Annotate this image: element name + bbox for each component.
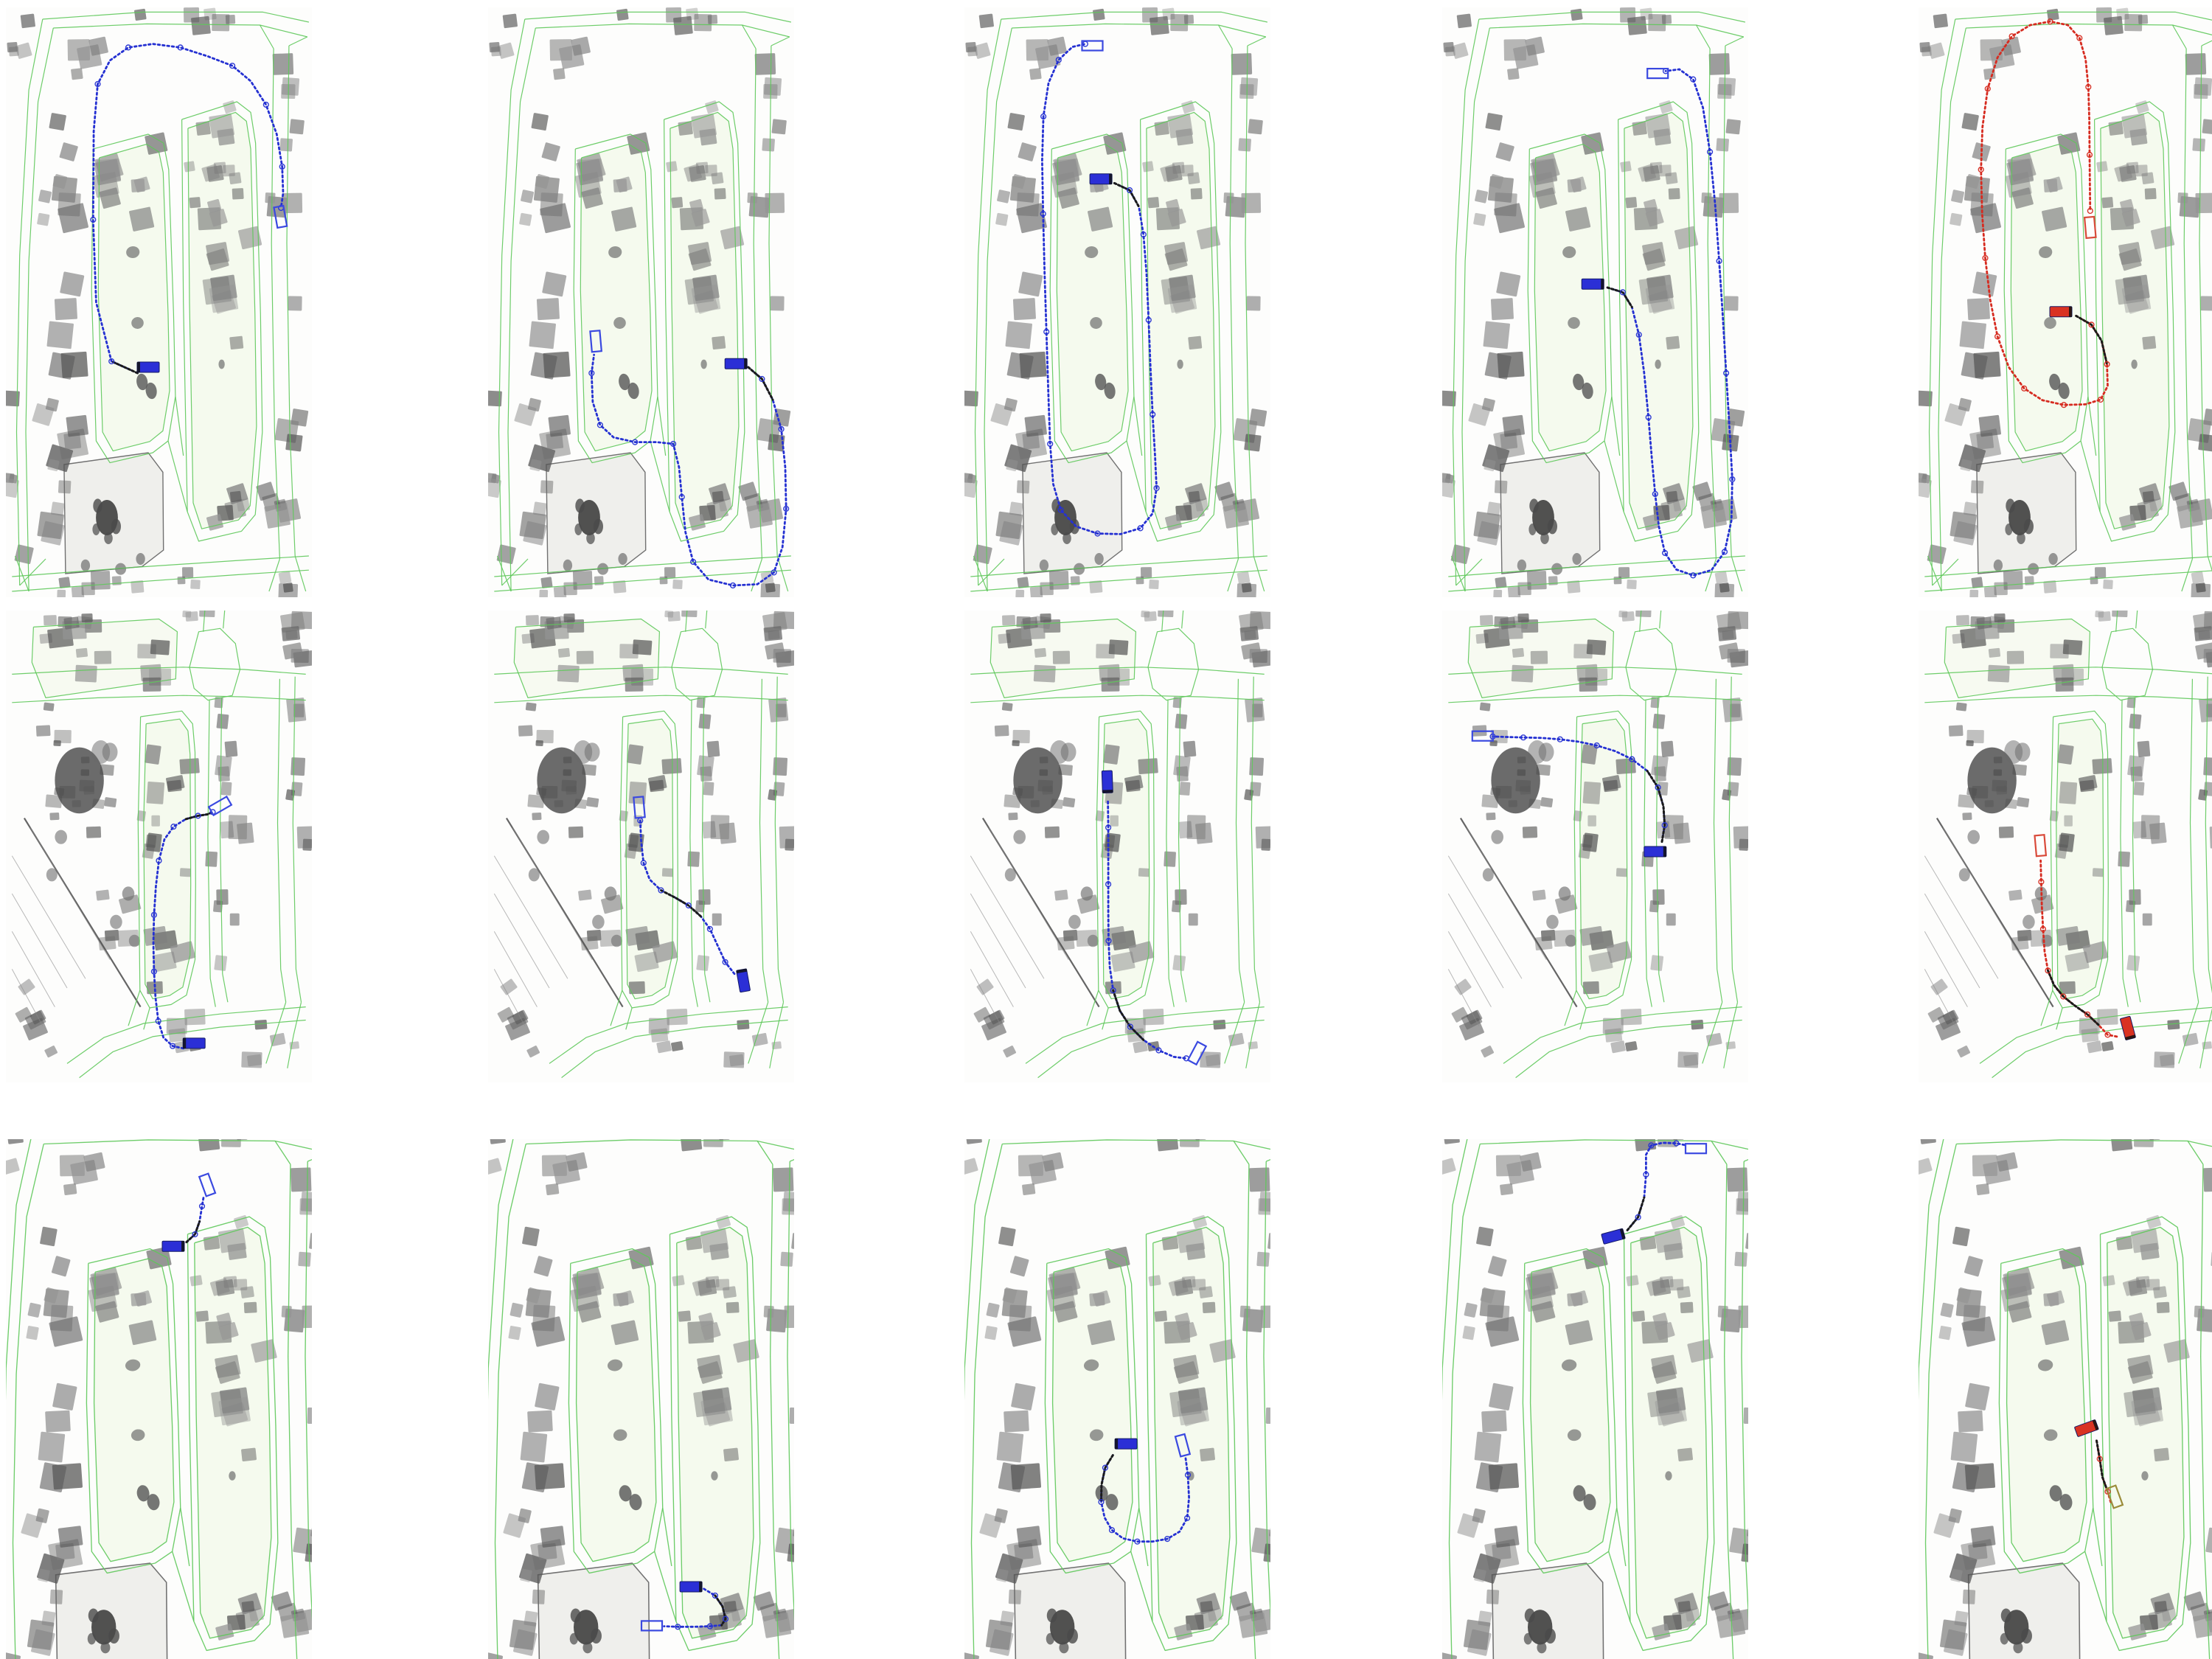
vehicle-box-r2c1 [183,1038,205,1048]
map-canvas-r2c2 [488,611,794,1082]
map-canvas-r1c1 [6,7,312,597]
vehicle-box-r1c3 [1090,174,1112,184]
map-canvas-r3c5 [1919,1139,2212,1659]
map-canvas-r1c2 [488,7,794,597]
trajectory-panel-r2c3 [964,611,1270,1082]
trajectory-panel-r1c5 [1919,7,2212,597]
map-canvas-r3c1 [6,1139,312,1659]
vehicle-box-r2c4 [1644,846,1666,857]
map-canvas-r2c5 [1919,611,2212,1082]
map-canvas-r3c4 [1442,1139,1748,1659]
vehicle-box-r3c1 [162,1241,184,1251]
trajectory-panel-r1c3 [964,7,1270,597]
map-canvas-r2c3 [964,611,1270,1082]
map-canvas-r1c3 [964,7,1270,597]
trajectory-panel-r1c2 [488,7,794,597]
trajectory-panel-r2c5 [1919,611,2212,1082]
map-canvas-r1c4 [1442,7,1748,597]
vehicle-box-r1c1 [137,362,159,372]
map-canvas-r3c2 [488,1139,794,1659]
vehicle-box-r1c2 [725,358,747,369]
trajectory-panel-r3c4 [1442,1139,1748,1659]
trajectory-panel-r2c4 [1442,611,1748,1082]
vehicle-box-r1c4 [1582,279,1604,289]
trajectory-panel-r3c2 [488,1139,794,1659]
map-canvas-r2c4 [1442,611,1748,1082]
vehicle-box-r1c5 [2050,307,2072,317]
vehicle-box-r3c2 [680,1582,702,1592]
trajectory-panel-r1c1 [6,7,312,597]
vehicle-box-r3c3 [1115,1439,1137,1449]
trajectory-panel-r2c1 [6,611,312,1082]
vehicle-box-r2c3 [1102,771,1113,793]
trajectory-panel-r3c5 [1919,1139,2212,1659]
map-canvas-r2c1 [6,611,312,1082]
map-canvas-r1c5 [1919,7,2212,597]
map-canvas-r3c3 [964,1139,1270,1659]
trajectory-panel-r3c3 [964,1139,1270,1659]
trajectory-panel-r3c1 [6,1139,312,1659]
trajectory-panel-r2c2 [488,611,794,1082]
trajectory-panel-r1c4 [1442,7,1748,597]
